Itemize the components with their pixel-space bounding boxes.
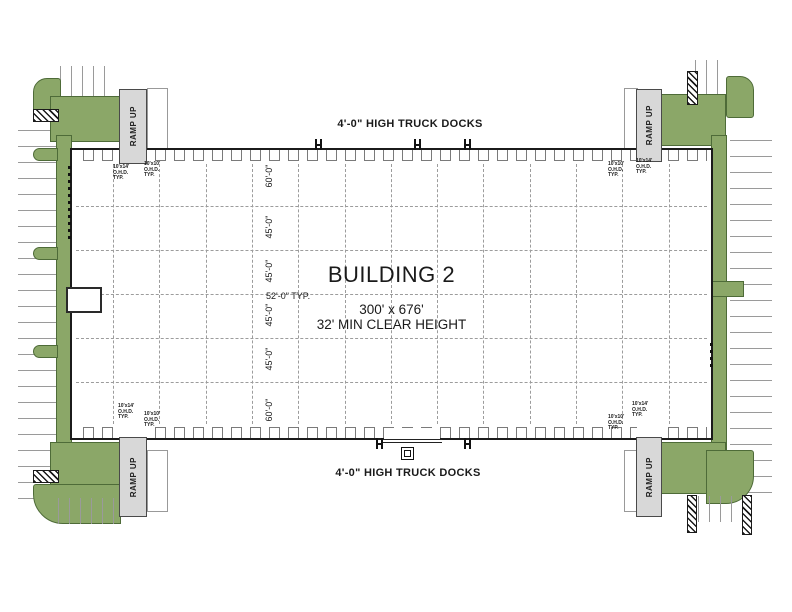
ohd-label-bottom-left-inner: 10'x10'O.H.D.TYP. [144,412,174,429]
ohd-label-top-left-outer: 10'x14'O.H.D.TYP. [113,165,143,182]
parking-stripes-bottom-left [58,498,120,524]
canopy-edge [382,439,442,443]
dock-notches-bottom-left-corner [80,427,120,438]
hatch-crosswalk-right-bottom-1 [687,495,697,533]
dim-label-row-5: 45'-0" [264,337,274,381]
dock-bumper-icon [315,139,322,150]
dock-bumper-icon [464,438,471,449]
ramp-left-bottom: RAMP UP [119,437,147,517]
landscape-bump-right-center [711,281,744,297]
bay-spacing-label: 52'-0" TYP. [266,291,310,301]
ramp-right-bottom: RAMP UP [636,437,662,517]
dotted-wall-left [68,166,71,242]
dotted-wall-right [710,343,713,367]
column-grid [72,150,711,438]
dim-label-row-1: 60'-0" [264,154,274,198]
ohd-label-top-right-inner: 10'x10'O.H.D.TYP. [608,162,638,179]
landscape-tab-left-3 [33,345,58,358]
hatch-crosswalk-right-top [687,71,698,105]
ramp-right-top: RAMP UP [636,89,662,162]
dim-label-row-3: 45'-0" [264,249,274,293]
dim-label-row-2: 45'-0" [264,205,274,249]
parking-stripes-bottom-right [698,496,742,522]
dock-bumper-icon [414,139,421,150]
ramp-lane-left-bottom [147,450,168,512]
landscape-tab-left-2 [33,247,58,260]
grid-line-horizontal [76,250,707,251]
site-plan-canvas: RAMP UP RAMP UP RAMP UP RAMP UP [0,0,792,612]
dock-bumper-icon [376,438,383,449]
dock-notches-bottom-right-corner [665,427,707,438]
ramp-up-label: RAMP UP [645,105,654,145]
parking-stripes-right [730,140,772,502]
grid-line-horizontal [76,382,707,383]
parking-stripes-top-left [60,66,110,98]
dock-notches-top-left-corner [80,150,120,161]
building-outline [70,148,713,440]
landscape-strip-right [711,135,727,472]
ramp-up-label: RAMP UP [645,457,654,497]
dock-notches-top [152,150,637,161]
hatch-crosswalk-right-bottom-2 [742,495,752,535]
dock-notches-top-right-corner [665,150,707,161]
hatch-crosswalk-left-bottom [33,470,59,483]
building-size: 300' x 676' [70,302,713,317]
ramp-up-label: RAMP UP [129,457,138,497]
grid-line-horizontal [76,294,707,295]
ohd-label-top-left-inner: 10'x10'O.H.D.TYP. [144,162,174,179]
landscape-tab-left-1 [33,148,58,161]
truck-docks-label-bottom: 4'-0" HIGH TRUCK DOCKS [298,467,518,479]
truck-docks-label-top: 4'-0" HIGH TRUCK DOCKS [300,118,520,130]
dim-label-row-6: 60'-0" [264,388,274,432]
building-name: BUILDING 2 [70,262,713,288]
grid-line-horizontal [76,206,707,207]
building-clear-height: 32' MIN CLEAR HEIGHT [70,317,713,332]
ramp-left-top: RAMP UP [119,89,147,164]
ramp-lane-left-top [147,88,168,150]
ramp-up-label: RAMP UP [129,106,138,146]
hatch-crosswalk-left-top [33,109,59,122]
landscape-island-top-right [726,76,754,118]
dock-bumper-icon [464,139,471,150]
grid-line-horizontal [76,338,707,339]
parking-stripes-top-right [695,60,725,96]
canopy-sign-icon [401,447,414,460]
ohd-label-bottom-right-outer: 10'x14'O.H.D.TYP. [632,402,662,419]
ohd-label-top-right-outer: 10'x14'O.H.D.TYP. [636,159,666,176]
